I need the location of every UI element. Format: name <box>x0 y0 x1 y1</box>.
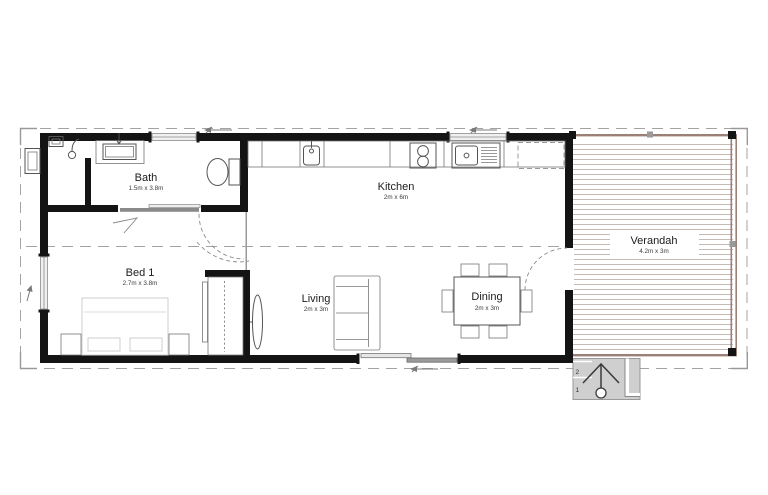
room-label-kitchen: Kitchen <box>378 181 415 193</box>
roof-corner-bracket <box>21 352 38 369</box>
floor-plan-page: Verandah 4.2m x 3m 2 1 <box>0 0 768 495</box>
arrow-icon <box>204 127 232 133</box>
room-dims-verandah: 4.2m x 3m <box>639 248 668 255</box>
room-label-verandah: Verandah <box>630 235 677 247</box>
sliding-door <box>118 204 201 213</box>
verandah-post <box>728 131 736 139</box>
wall-bath-east <box>240 133 248 212</box>
steps: 2 1 <box>573 359 640 400</box>
step-number-1: 1 <box>576 387 580 394</box>
wall-robe-north <box>205 270 250 277</box>
room-label-bath: Bath <box>135 172 158 184</box>
room-dims-dining: 2m x 3m <box>475 305 499 312</box>
verandah-rail-connector <box>647 132 653 138</box>
meter-box <box>25 149 40 174</box>
room-dims-kitchen: 2m x 6m <box>384 194 408 201</box>
room-label-dining: Dining <box>471 291 502 303</box>
arrow-icon <box>27 285 33 301</box>
room-dims-living: 2m x 3m <box>304 306 328 313</box>
roof-corner-bracket <box>21 129 38 146</box>
door-opening <box>564 248 574 290</box>
room-dims-bath: 1.5m x 3.8m <box>129 185 164 192</box>
window <box>39 254 50 313</box>
window <box>149 132 200 143</box>
verandah: Verandah 4.2m x 3m <box>569 131 737 356</box>
cased-opening-line <box>246 212 248 270</box>
room-dims-bed1: 2.7m x 3.8m <box>123 280 158 287</box>
sliding-door <box>357 353 461 364</box>
arrow-icon <box>410 366 438 372</box>
wall-shower-divider <box>85 158 91 212</box>
step-number-2: 2 <box>576 369 580 376</box>
room-label-bed1: Bed 1 <box>126 267 155 279</box>
verandah-post <box>728 348 736 356</box>
floor-plan-image: Verandah 4.2m x 3m 2 1 <box>0 0 768 495</box>
room-label-living: Living <box>302 293 331 305</box>
verandah-rail-connector <box>730 241 736 247</box>
wall-robe-east <box>243 277 250 355</box>
